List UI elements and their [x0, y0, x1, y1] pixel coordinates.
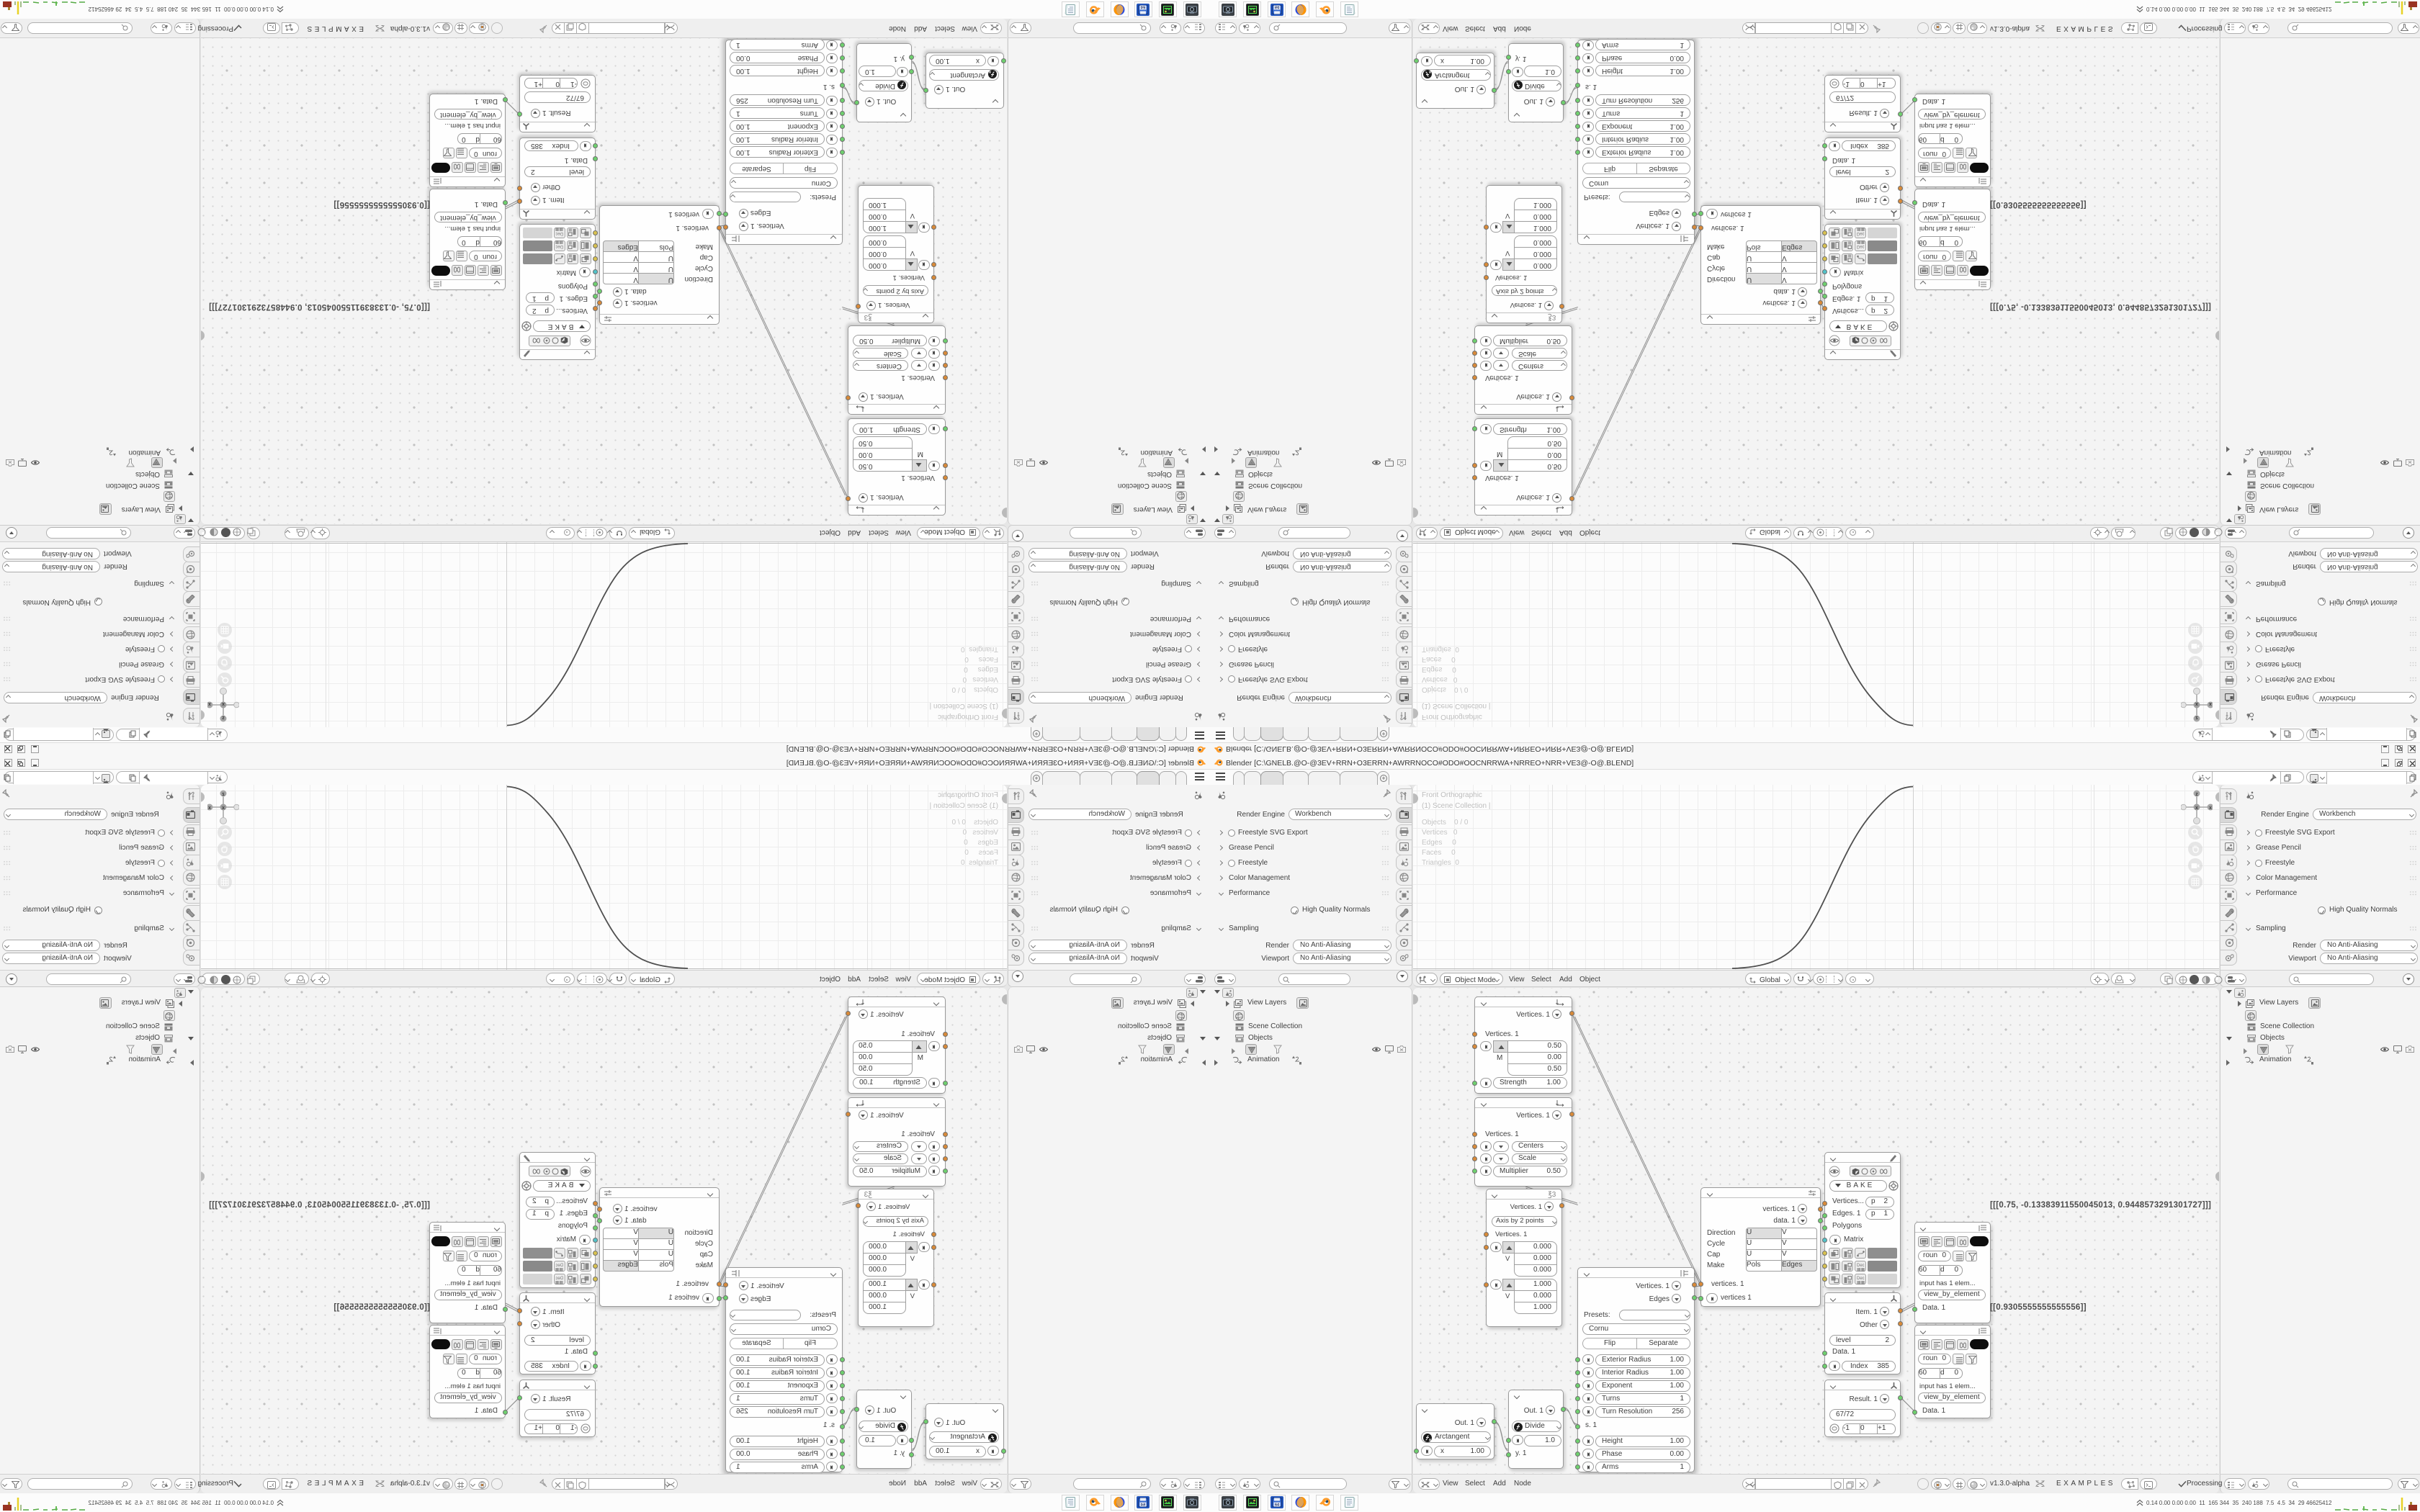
svg-text:x: x [222, 701, 225, 706]
svg-text:64: 64 [1140, 5, 1145, 9]
svg-text:x: x [222, 806, 225, 811]
svg-text:x: x [2209, 806, 2212, 811]
svg-text:x: x [2195, 701, 2198, 706]
svg-text:64: 64 [1275, 1503, 1280, 1508]
svg-text:x: x [208, 701, 211, 706]
svg-text:64: 64 [1140, 1503, 1145, 1508]
svg-text:x: x [2195, 806, 2198, 811]
svg-text:x: x [2209, 701, 2212, 706]
svg-text:64: 64 [1275, 5, 1280, 9]
svg-text:z: z [222, 715, 225, 720]
svg-text:z: z [2195, 792, 2198, 797]
svg-text:z: z [2195, 715, 2198, 720]
svg-text:z: z [222, 792, 225, 797]
svg-text:x: x [208, 806, 211, 811]
